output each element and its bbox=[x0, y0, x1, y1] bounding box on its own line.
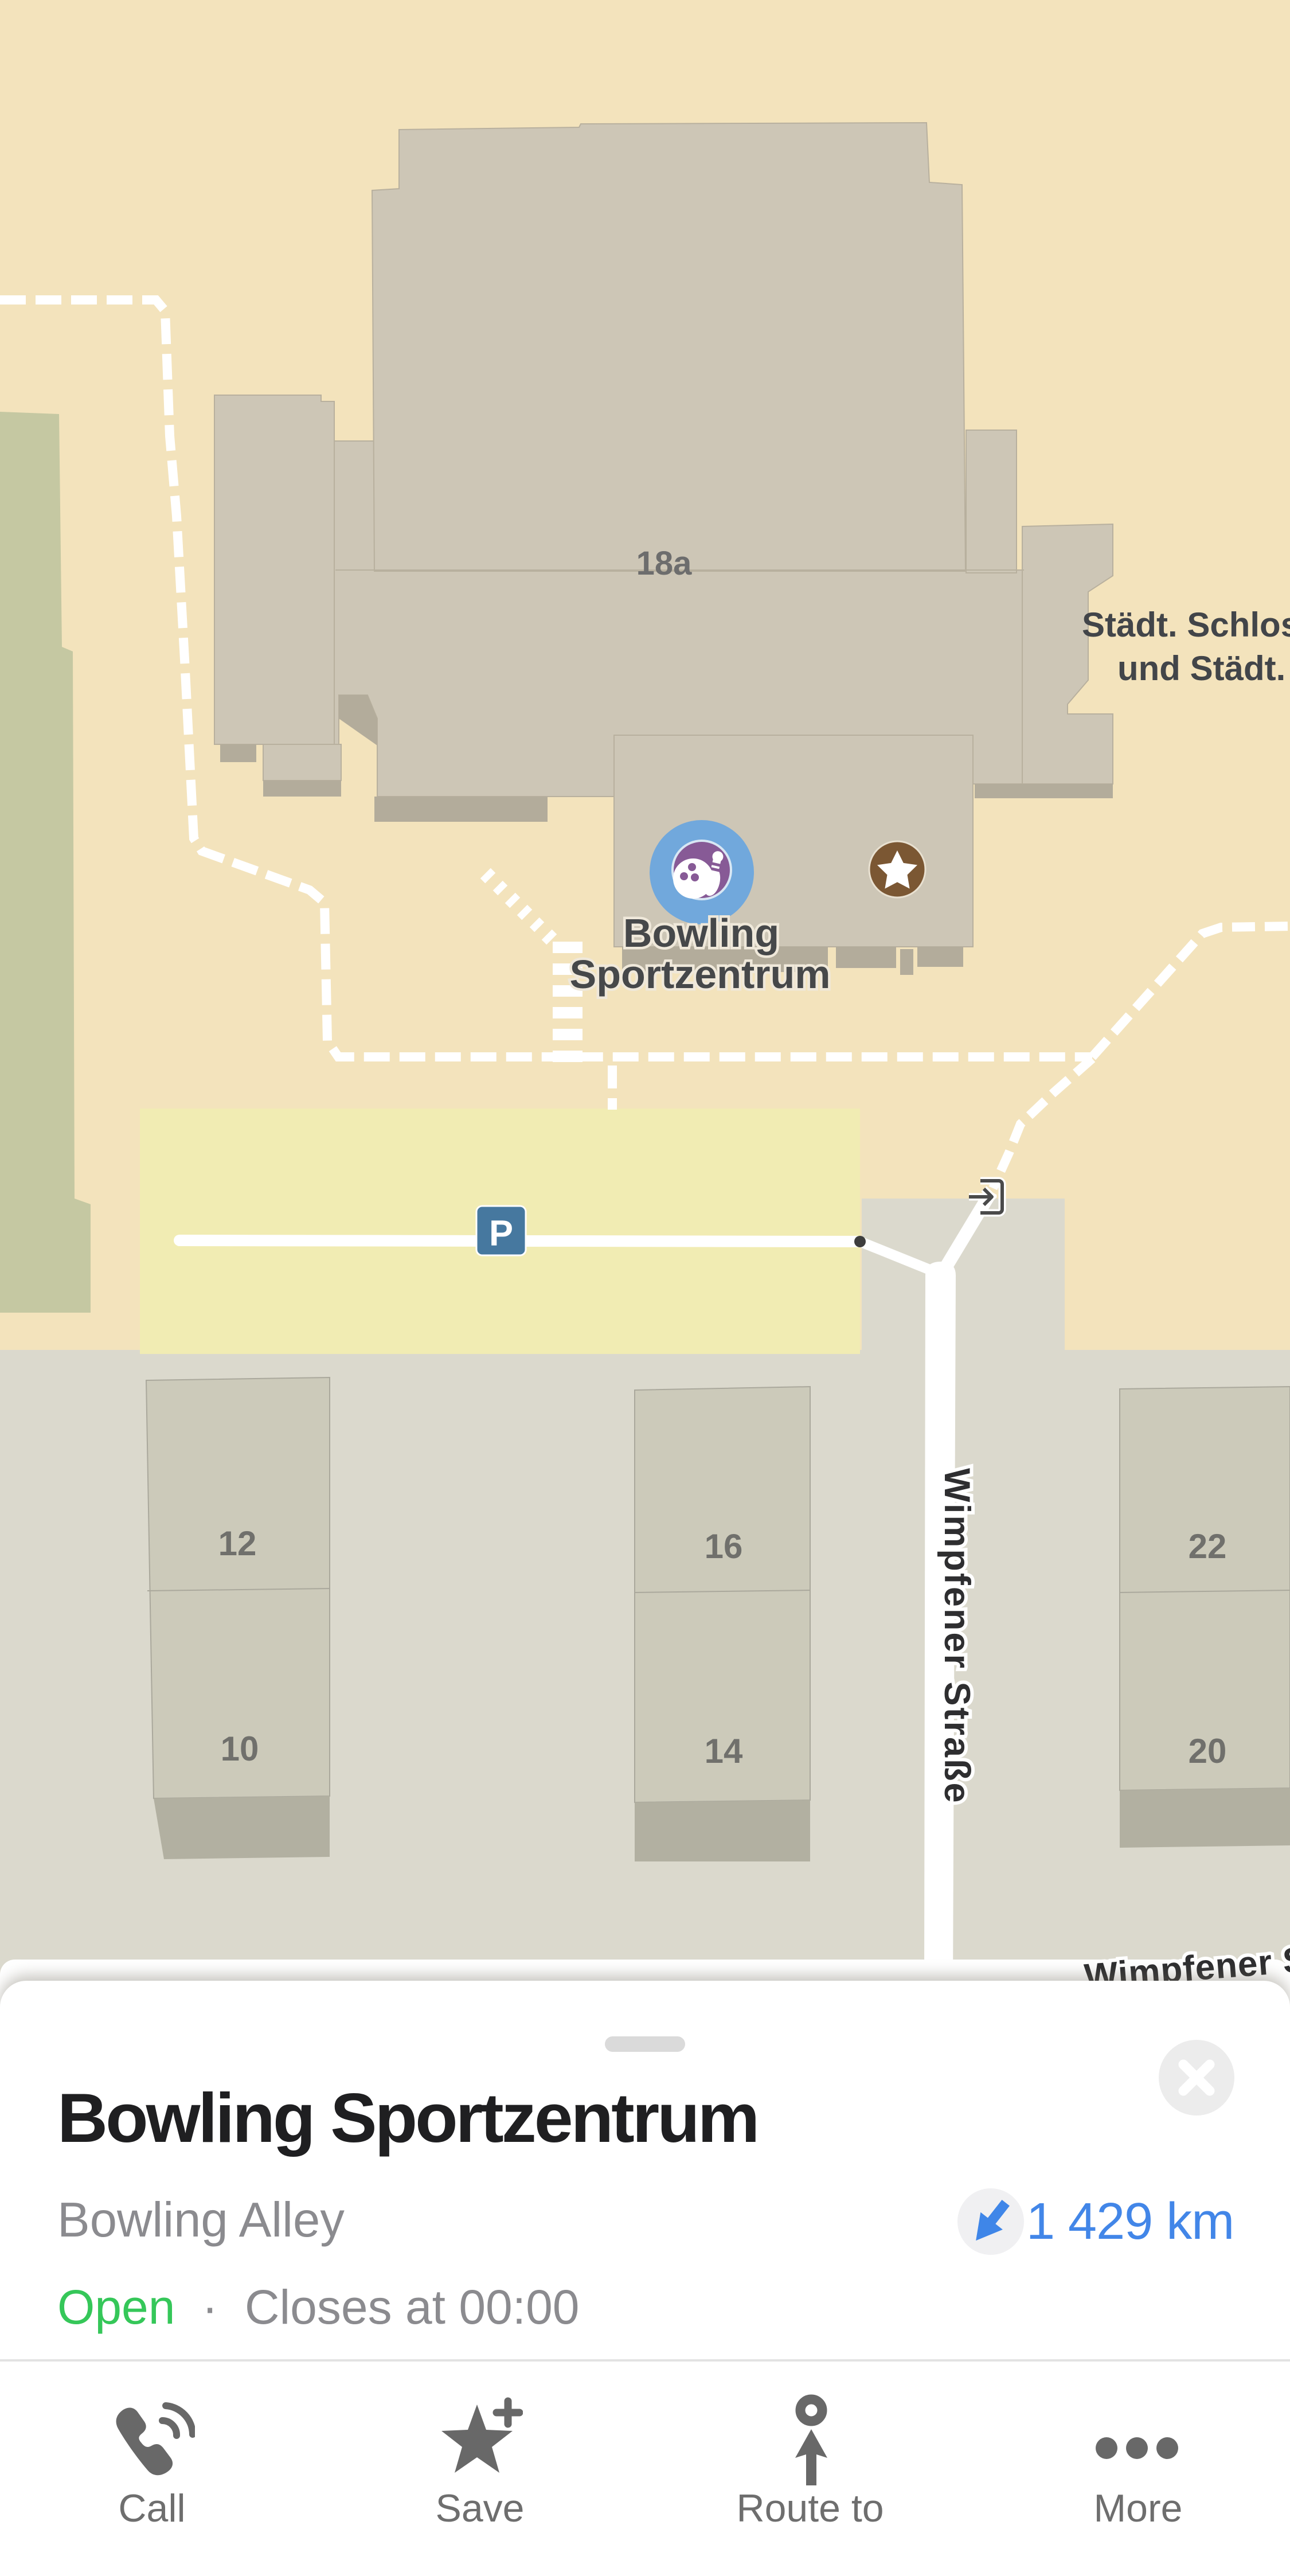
svg-text:10: 10 bbox=[221, 1730, 259, 1768]
svg-text:Wimpfener Straße: Wimpfener Straße bbox=[937, 1468, 977, 1805]
svg-text:12: 12 bbox=[218, 1524, 257, 1563]
svg-text:22: 22 bbox=[1189, 1527, 1227, 1566]
svg-text:20: 20 bbox=[1189, 1732, 1227, 1770]
svg-text:Sportzentrum: Sportzentrum bbox=[570, 952, 831, 997]
svg-text:P: P bbox=[489, 1213, 513, 1254]
svg-text:16: 16 bbox=[705, 1527, 743, 1566]
svg-text:Bowling: Bowling bbox=[623, 911, 779, 955]
svg-text:18a: 18a bbox=[636, 545, 693, 582]
svg-text:Städt. Schloss: Städt. Schloss bbox=[1082, 606, 1290, 644]
svg-text:14: 14 bbox=[705, 1732, 743, 1770]
svg-text:und Städt.: und Städt. bbox=[1117, 649, 1285, 688]
